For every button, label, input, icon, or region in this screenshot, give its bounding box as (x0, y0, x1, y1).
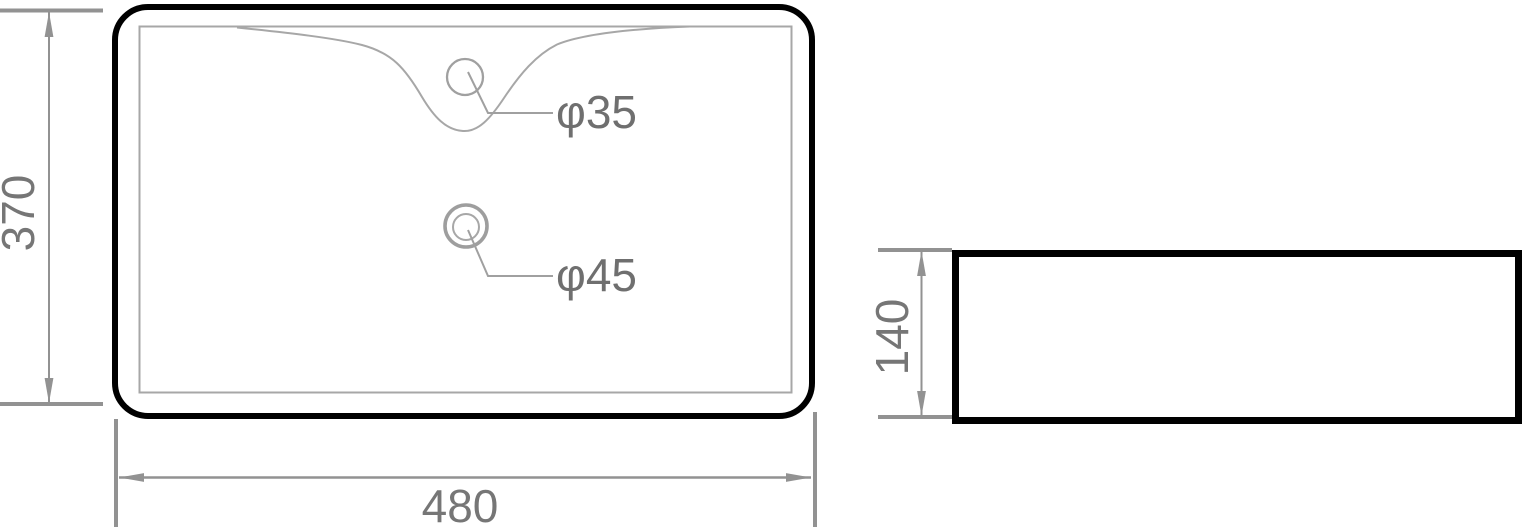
arrowhead-up (45, 12, 54, 37)
drain-hole-diameter-label: φ45 (556, 249, 637, 301)
top-view: φ35 φ45 (115, 7, 812, 416)
drain-hole-inner-circle (453, 214, 479, 240)
top-view-width-dimension: 480 (116, 412, 815, 527)
side-view-outline (956, 254, 1519, 421)
arrowhead-down (917, 391, 926, 416)
faucet-hole-diameter-label: φ35 (556, 86, 637, 138)
side-view-height-dimension: 140 (866, 250, 952, 417)
technical-drawing: φ35 φ45 370 480 (0, 0, 1524, 527)
drain-hole-leader-line (468, 230, 553, 276)
basin-outer-outline (115, 7, 812, 416)
top-view-height-dimension: 370 (0, 11, 103, 405)
arrowhead-up (917, 251, 926, 276)
arrowhead-left (119, 473, 144, 482)
faucet-hole-leader-line (468, 72, 553, 113)
arrowhead-right (786, 473, 811, 482)
side-view-height-label: 140 (866, 299, 918, 376)
basin-inner-rim (140, 27, 792, 393)
drawing-canvas: φ35 φ45 370 480 (0, 0, 1524, 527)
top-view-height-label: 370 (0, 175, 44, 252)
top-view-width-label: 480 (422, 480, 499, 527)
side-view (956, 254, 1519, 421)
arrowhead-down (45, 378, 54, 403)
